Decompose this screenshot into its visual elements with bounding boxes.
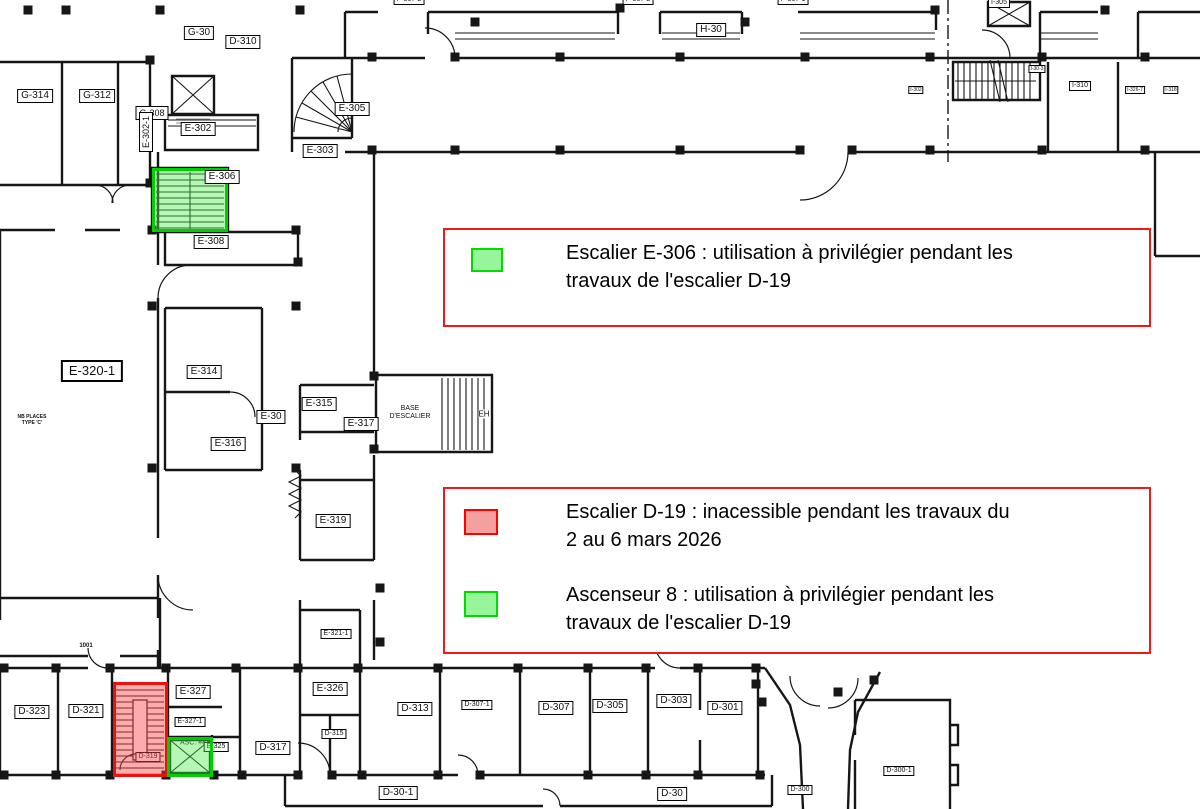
room-label-e302-1: E-302-1: [139, 112, 153, 152]
room-label-d307-1: D-307-1: [461, 700, 492, 710]
legend-swatch-green-asc8: [464, 591, 498, 617]
legend-swatch-red-d19: [464, 509, 498, 535]
room-label-e319: E-319: [316, 514, 351, 528]
eh-text: EH: [478, 410, 489, 419]
room-label-e315: E-315: [302, 397, 337, 411]
room-1001-text: 1001: [79, 643, 92, 649]
room-label-e321-1: E-321-1: [321, 629, 352, 639]
room-label-d313: D-313: [397, 702, 432, 716]
room-label-e30: E-30: [256, 410, 285, 424]
room-label-e308: E-308: [194, 235, 229, 249]
room-label-i302: I-302: [908, 86, 923, 94]
room-label-d323: D-323: [14, 705, 49, 719]
highlight-escalier-d19: [113, 682, 168, 777]
legend-text-d19: Escalier D-19 : inacessible pendant les …: [566, 498, 1141, 554]
room-label-e305: E-305: [335, 102, 370, 116]
legend-swatch-green-e306: [471, 248, 503, 272]
room-label-d30: D-30: [657, 787, 687, 801]
stair-top-right: [955, 60, 1036, 102]
room-label-d300-1: D-300-1: [883, 766, 914, 776]
room-label-d307: D-307: [538, 701, 573, 715]
room-label-h30: H-30: [696, 23, 726, 37]
room-label-i30-3: I-30-3: [1028, 65, 1045, 73]
legend-box-d19-asc8: Escalier D-19 : inacessible pendant les …: [443, 487, 1151, 654]
room-label-p307-1: P-307-1: [778, 0, 809, 5]
room-label-d303: D-303: [656, 694, 691, 708]
room-label-i310: I-310: [1069, 81, 1091, 91]
room-label-p307-2a: P-307-2: [394, 0, 425, 5]
room-label-e302: E-302: [181, 122, 216, 136]
room-label-e326: E-326: [313, 682, 348, 696]
room-label-e316: E-316: [211, 437, 246, 451]
room-label-d301: D-301: [707, 701, 742, 715]
room-label-d317: D-317: [255, 741, 290, 755]
legend-text-e306: Escalier E-306 : utilisation à privilégi…: [566, 239, 1141, 295]
room-label-e317: E-317: [344, 417, 379, 431]
room-label-d315: D-315: [321, 729, 346, 739]
room-label-d300: D-300: [787, 785, 812, 795]
room-label-e327: E-327: [176, 685, 211, 699]
floorplan-page: D-319 ASC. #8 E-325 G-30 D-310 G-314 G-3…: [0, 0, 1200, 809]
room-label-p307-2b: P-307-2: [623, 0, 654, 5]
room-label-e303: E-303: [303, 144, 338, 158]
room-label-i318: I-318: [1163, 86, 1178, 94]
legend-box-e306: Escalier E-306 : utilisation à privilégi…: [443, 228, 1151, 327]
room-label-g312: G-312: [79, 89, 115, 103]
room-label-d30-1: D-30-1: [379, 786, 418, 800]
places-type-c-text: NB PLACES TYPE 'C': [18, 414, 47, 426]
legend-text-asc8: Ascenseur 8 : utilisation à privilégier …: [566, 581, 1141, 637]
stairs-group: [116, 60, 1036, 768]
room-label-e314: E-314: [187, 365, 222, 379]
room-label-d305: D-305: [592, 699, 627, 713]
room-label-e327-1: E-327-1: [175, 717, 206, 727]
highlight-ascenseur-8: [167, 737, 213, 777]
room-label-e320-1: E-320-1: [61, 360, 123, 382]
elevator-shaft-top-left: [172, 76, 214, 114]
base-escalier-text: BASE D'ESCALIER: [389, 405, 430, 421]
room-label-g30: G-30: [184, 26, 214, 40]
room-label-i326-7: I-326-7: [1125, 86, 1145, 94]
room-label-i305: I-305: [988, 0, 1010, 8]
room-label-e306: E-306: [205, 170, 240, 184]
room-label-d321: D-321: [68, 704, 103, 718]
room-label-g314: G-314: [17, 89, 53, 103]
room-label-d310: D-310: [225, 35, 260, 49]
